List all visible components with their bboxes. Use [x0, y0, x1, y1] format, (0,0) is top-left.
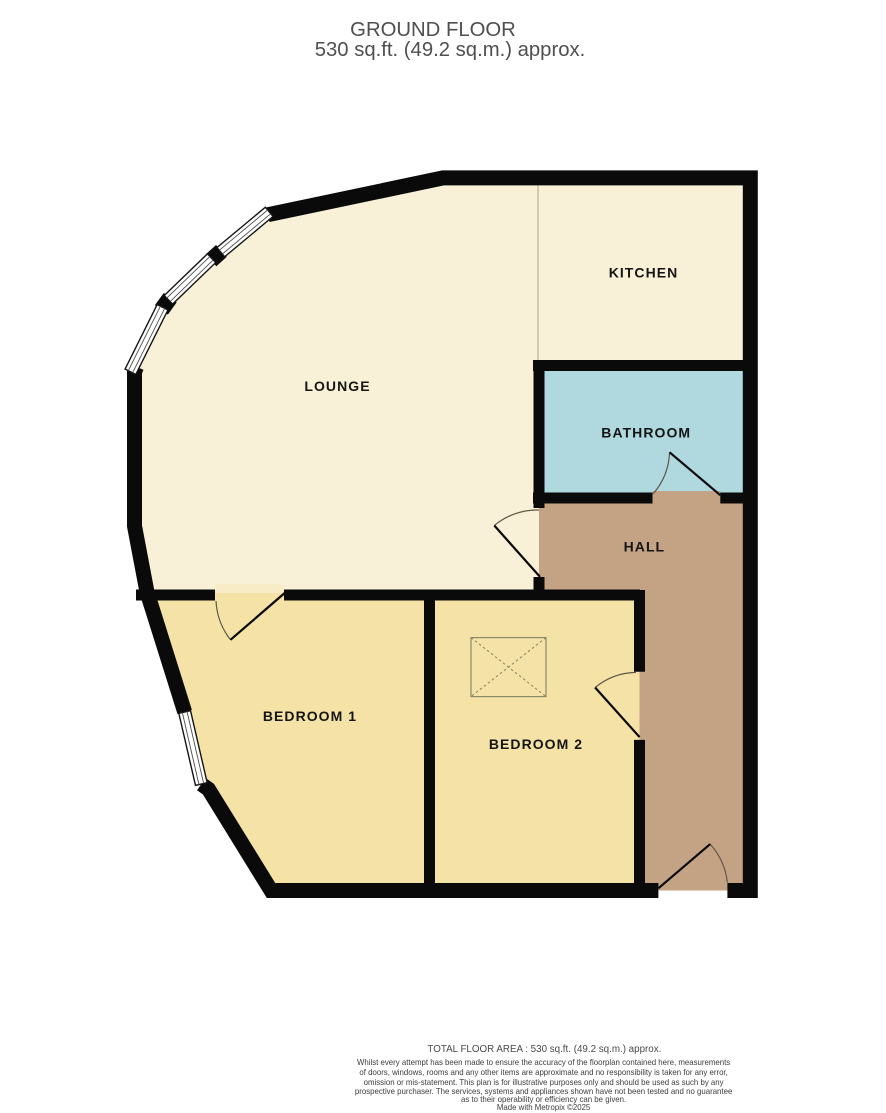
svg-text:BEDROOM 1: BEDROOM 1 [263, 708, 357, 724]
svg-text:LOUNGE: LOUNGE [304, 378, 370, 394]
svg-text:HALL: HALL [624, 539, 666, 555]
svg-text:BEDROOM 2: BEDROOM 2 [489, 736, 583, 752]
svg-text:BATHROOM: BATHROOM [601, 425, 691, 441]
svg-text:KITCHEN: KITCHEN [609, 265, 679, 281]
